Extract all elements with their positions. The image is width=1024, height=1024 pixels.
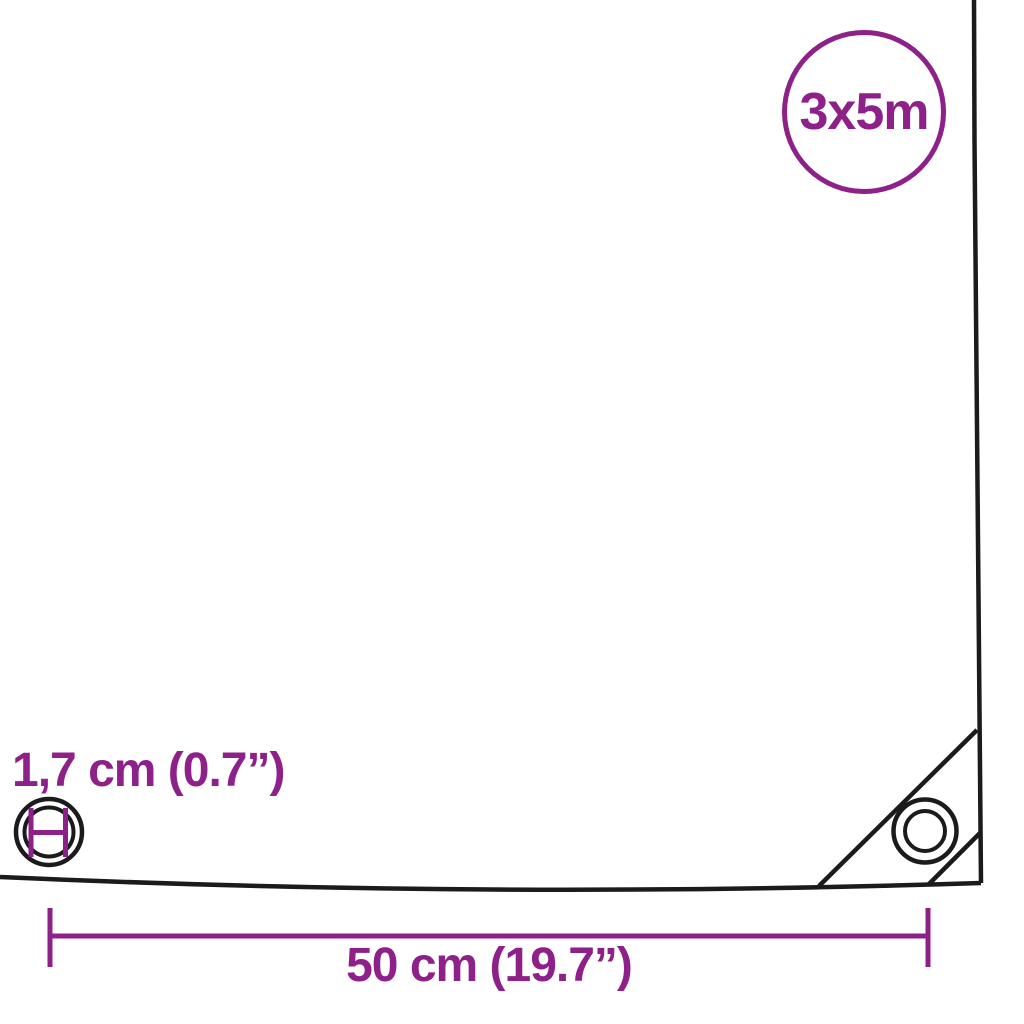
tarp-bottom-edge [0,877,981,890]
tarp-right-edge [974,0,981,883]
size-badge-label: 3x5m [800,86,929,138]
eyelet-diameter-label: 1,7 cm (0.7”) [12,747,284,795]
grommet-spacing-label: 50 cm (19.7”) [346,942,632,990]
size-badge: 3x5m [782,30,946,194]
eyelet-diameter-marker-icon [31,808,66,857]
corner-grommet-inner-ring [905,811,945,851]
corner-grommet-outer-ring [894,800,957,863]
product-dimension-diagram: 3x5m 1,7 cm (0.7”) 50 cm (19.7”) [0,0,1024,1024]
